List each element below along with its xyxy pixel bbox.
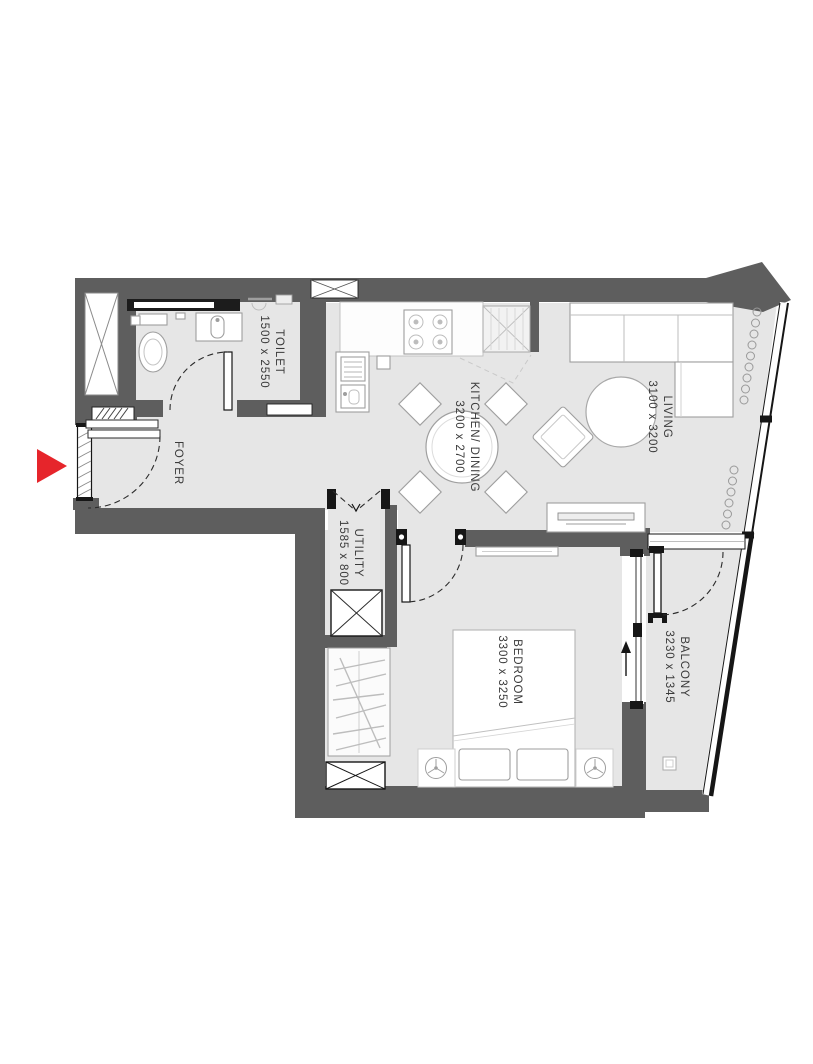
vanity-shelf bbox=[134, 302, 214, 308]
balcony-bottom-wall bbox=[645, 790, 709, 812]
bedroom-name: BEDROOM bbox=[511, 639, 523, 705]
fridge bbox=[483, 306, 530, 352]
toilet-right-wall bbox=[300, 293, 326, 407]
balcony-drain bbox=[663, 757, 676, 770]
lamp bbox=[426, 758, 447, 779]
bedroom-shelf bbox=[476, 547, 558, 556]
bedroom-left-wall bbox=[295, 508, 325, 790]
toilet-bottom-wall-left bbox=[136, 400, 163, 417]
floor-plan-drawing: TOILET 1500 x 2550 FOYER KITCHEN/ DINING… bbox=[0, 0, 813, 1064]
hatch-box bbox=[92, 407, 134, 420]
utility-bottom-wall bbox=[325, 635, 387, 648]
room-label-foyer: FOYER bbox=[172, 441, 184, 485]
utility-dims: 1585 x 800 bbox=[337, 520, 349, 586]
kitchen-dining-dims: 3200 x 2700 bbox=[453, 400, 465, 473]
pillow bbox=[459, 749, 510, 780]
living-name: LIVING bbox=[661, 395, 673, 438]
kitchen-wall-stub bbox=[530, 299, 539, 352]
foyer-name: FOYER bbox=[172, 441, 184, 485]
sliding-door bbox=[621, 549, 644, 709]
tv-console bbox=[547, 503, 645, 532]
wc bbox=[139, 314, 167, 372]
bedroom-dims: 3300 x 3250 bbox=[496, 635, 508, 708]
balcony-dims: 3230 x 1345 bbox=[663, 630, 675, 703]
slide-arrow bbox=[621, 641, 631, 676]
utility-name: UTILITY bbox=[352, 528, 364, 577]
kitchen-sink bbox=[336, 352, 369, 412]
toilet-dims: 1500 x 2550 bbox=[258, 315, 270, 388]
floor-plan-page: TOILET 1500 x 2550 FOYER KITCHEN/ DINING… bbox=[0, 0, 813, 1064]
counter-box bbox=[377, 356, 390, 369]
shaft-box bbox=[85, 293, 118, 395]
balcony-name: BALCONY bbox=[678, 636, 690, 697]
wardrobe bbox=[328, 648, 390, 756]
stove bbox=[404, 310, 452, 354]
cistern-box bbox=[131, 316, 140, 325]
toilet-name: TOILET bbox=[273, 329, 285, 374]
service-box bbox=[326, 762, 385, 789]
balcony-separation-wall bbox=[622, 702, 646, 790]
kitchen-dining-name: KITCHEN/ DINING bbox=[468, 382, 480, 493]
coffee-table bbox=[586, 377, 656, 447]
lamp bbox=[585, 758, 606, 779]
utility-right-wall bbox=[385, 505, 397, 647]
bedroom-bottom-wall bbox=[295, 786, 645, 818]
utility-appliance bbox=[331, 590, 382, 636]
basin-vanity bbox=[196, 313, 242, 341]
pillow bbox=[517, 749, 568, 780]
chaise bbox=[675, 362, 733, 417]
accessory-box bbox=[176, 313, 185, 319]
vent-box bbox=[311, 280, 358, 298]
threshold-inset bbox=[267, 404, 312, 415]
living-dims: 3100 x 3200 bbox=[646, 380, 658, 453]
entrance-arrow bbox=[37, 449, 67, 483]
foyer-bottom-wall bbox=[75, 508, 325, 534]
